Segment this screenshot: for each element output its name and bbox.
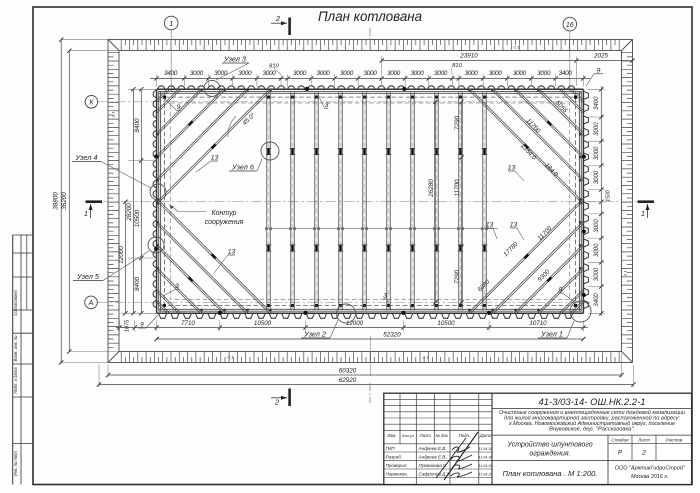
- svg-text:-2.1: -2.1: [111, 112, 116, 119]
- svg-text:3400: 3400: [558, 70, 572, 77]
- svg-text:Узел 2: Узел 2: [303, 330, 326, 339]
- svg-text:13: 13: [211, 155, 219, 162]
- svg-text:сооружения: сооружения: [205, 219, 244, 226]
- svg-text:3000: 3000: [262, 70, 276, 77]
- svg-text:11.04.16: 11.04.16: [479, 464, 493, 468]
- svg-text:Сафронов Д.Х.: Сафронов Д.Х.: [419, 471, 451, 476]
- svg-text:3000: 3000: [464, 70, 478, 77]
- svg-text:2: 2: [275, 14, 281, 23]
- svg-text:Листов: Листов: [664, 437, 682, 442]
- svg-text:3000: 3000: [489, 70, 503, 77]
- svg-text:Изм.: Изм.: [387, 433, 396, 438]
- svg-text:9: 9: [177, 104, 181, 111]
- svg-text:13: 13: [228, 249, 236, 256]
- svg-text:Лукманова С.: Лукманова С.: [418, 463, 448, 468]
- svg-text:ограждения.: ограждения.: [529, 450, 570, 458]
- svg-text:-2.1: -2.1: [623, 271, 628, 278]
- svg-text:52320: 52320: [383, 331, 401, 338]
- svg-text:28200: 28200: [126, 203, 133, 222]
- svg-text:3000: 3000: [594, 267, 600, 281]
- svg-text:Узел 1: Узел 1: [540, 330, 563, 339]
- svg-text:3000: 3000: [363, 70, 377, 77]
- svg-text:3000: 3000: [594, 243, 600, 257]
- svg-text:1: 1: [84, 209, 88, 218]
- svg-text:3000: 3000: [594, 170, 600, 184]
- svg-text:16: 16: [566, 22, 574, 29]
- svg-text:2025: 2025: [593, 53, 609, 60]
- svg-text:26280: 26280: [428, 179, 435, 198]
- svg-text:Узел 5: Узел 5: [76, 272, 100, 281]
- svg-text:12000: 12000: [346, 320, 364, 327]
- svg-text:1500: 1500: [606, 190, 612, 202]
- svg-text:ГИП: ГИП: [386, 446, 396, 451]
- svg-text:1: 1: [169, 19, 173, 28]
- svg-text:Кол.уч: Кол.уч: [402, 433, 414, 438]
- svg-text:41-3/03-14- ОШ.НК.2.2-1: 41-3/03-14- ОШ.НК.2.2-1: [539, 397, 646, 407]
- svg-text:23910: 23910: [459, 52, 478, 59]
- svg-text:3000: 3000: [594, 122, 600, 136]
- svg-text:9: 9: [140, 322, 144, 329]
- svg-text:Узел 6: Узел 6: [231, 163, 255, 172]
- svg-text:810: 810: [452, 63, 462, 69]
- svg-text:11700: 11700: [454, 179, 461, 197]
- svg-text:Устройство шпунтового: Устройство шпунтового: [506, 441, 592, 449]
- svg-text:3400: 3400: [594, 96, 600, 110]
- svg-text:-2.1: -2.1: [422, 355, 429, 360]
- svg-text:3000: 3000: [410, 70, 424, 77]
- svg-text:План котлована: План котлована: [318, 9, 422, 24]
- svg-text:9: 9: [559, 287, 563, 294]
- svg-text:13: 13: [508, 165, 516, 172]
- svg-text:1: 1: [641, 209, 645, 218]
- svg-text:3000: 3000: [594, 219, 600, 233]
- svg-text:2: 2: [641, 450, 646, 457]
- svg-text:36200: 36200: [61, 192, 68, 210]
- svg-text:3000: 3000: [387, 70, 401, 77]
- svg-text:11.04.16: 11.04.16: [479, 447, 493, 451]
- svg-text:13: 13: [486, 222, 494, 229]
- svg-text:3000: 3000: [316, 70, 330, 77]
- svg-text:3000: 3000: [340, 70, 354, 77]
- svg-text:13: 13: [510, 222, 518, 229]
- svg-text:Разраб.: Разраб.: [386, 454, 403, 459]
- svg-text:3400: 3400: [594, 293, 600, 307]
- svg-text:Контур: Контур: [212, 210, 237, 217]
- svg-text:1875: 1875: [125, 319, 131, 332]
- svg-text:38800: 38800: [53, 192, 60, 210]
- svg-text:Лист: Лист: [637, 437, 650, 442]
- svg-text:3: 3: [383, 293, 387, 300]
- svg-text:-2.1: -2.1: [227, 355, 234, 360]
- svg-text:Стадия: Стадия: [611, 437, 629, 442]
- svg-text:3: 3: [175, 283, 179, 290]
- svg-text:11.04.16: 11.04.16: [479, 472, 493, 476]
- svg-text:3000: 3000: [238, 70, 252, 77]
- svg-text:8400: 8400: [134, 118, 141, 133]
- svg-text:3000: 3000: [594, 146, 600, 160]
- svg-text:60320: 60320: [339, 367, 357, 374]
- svg-text:3400: 3400: [164, 70, 178, 77]
- svg-text:Лист: Лист: [419, 433, 431, 438]
- svg-text:Узел 4: Узел 4: [75, 153, 98, 162]
- svg-text:2: 2: [274, 398, 280, 407]
- svg-text:Взам. инв. №: Взам. инв. №: [13, 335, 18, 361]
- svg-text:3000: 3000: [434, 70, 448, 77]
- svg-text:Андреев Е.В.: Андреев Е.В.: [418, 446, 447, 451]
- svg-text:Инв. № подл.: Инв. № подл.: [13, 450, 18, 476]
- svg-text:Москва 2016 г.: Москва 2016 г.: [631, 474, 669, 480]
- svg-text:ООО "АрктикГидроСтрой": ООО "АрктикГидроСтрой": [615, 464, 686, 471]
- svg-text:10500: 10500: [254, 320, 272, 327]
- svg-text:3000: 3000: [214, 70, 228, 77]
- svg-text:8400: 8400: [134, 277, 141, 292]
- svg-text:-2.1: -2.1: [513, 45, 520, 50]
- svg-text:А: А: [88, 300, 94, 307]
- svg-text:Р: Р: [618, 450, 623, 457]
- svg-text:7290: 7290: [454, 270, 461, 285]
- svg-text:План котлована . М 1:200.: План котлована . М 1:200.: [503, 469, 598, 478]
- svg-text:10500: 10500: [134, 209, 141, 227]
- svg-text:3000: 3000: [513, 70, 527, 77]
- svg-text:10500: 10500: [437, 320, 455, 327]
- svg-text:7710: 7710: [181, 320, 195, 327]
- svg-text:11.04.16: 11.04.16: [479, 455, 493, 459]
- svg-text:Дата: Дата: [479, 433, 492, 438]
- svg-text:Андреев Е.В.: Андреев Е.В.: [418, 454, 447, 459]
- svg-text:Согласовано: Согласовано: [13, 290, 18, 316]
- svg-text:Подп.: Подп.: [459, 433, 470, 438]
- svg-text:9: 9: [597, 68, 601, 75]
- svg-text:Внуковское, дер. "Рассказовка": Внуковское, дер. "Рассказовка".: [549, 427, 635, 433]
- svg-text:Узел 3: Узел 3: [223, 55, 246, 64]
- svg-text:Нормокон.: Нормокон.: [386, 471, 409, 476]
- svg-text:62920: 62920: [339, 377, 357, 384]
- svg-text:12000: 12000: [118, 246, 125, 264]
- svg-text:Проверил: Проверил: [386, 463, 407, 468]
- svg-text:3000: 3000: [537, 70, 551, 77]
- svg-text:3000: 3000: [293, 70, 307, 77]
- svg-text:3: 3: [325, 102, 329, 109]
- svg-text:10710: 10710: [529, 320, 547, 327]
- svg-text:3000: 3000: [190, 70, 204, 77]
- svg-text:7290: 7290: [454, 116, 461, 131]
- svg-text:№ док.: № док.: [436, 433, 449, 438]
- svg-text:Подп. и дата: Подп. и дата: [13, 367, 18, 394]
